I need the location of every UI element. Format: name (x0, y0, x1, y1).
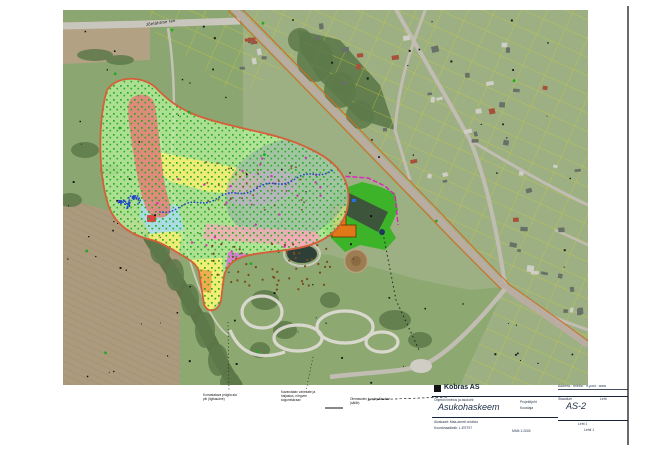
drawing-number: AS-2 (566, 401, 586, 411)
annotation-3: Olemasolev juurdepääsutee(säilib) (350, 397, 390, 405)
drawing-title: Asukohaskeem (438, 402, 500, 412)
company-name: Kobras AS (444, 384, 480, 391)
role-2: Koostaja (520, 406, 533, 410)
title-block: Kobras AS Aadress · telefon · e-post · w… (432, 383, 628, 445)
sheet-value: Leht 1 (578, 422, 587, 426)
sheets-value: Lehti 1 (584, 428, 594, 432)
company-logo (434, 385, 441, 392)
coordinate-note: Koordinaadistik: L-EST97 (434, 426, 472, 430)
annotation-2: Kavandatav vahekate jahaljastus, nõrgvee… (281, 390, 315, 402)
sheet-label: Leht (600, 397, 607, 401)
scale-note: Mõõt 1:2000 (512, 429, 531, 433)
basemap-note: Aluskaart: Maa-ameti ortofoto (434, 420, 478, 424)
map-photo-layers: Jõelähtme tee (58, 2, 588, 392)
annotation-1: Korrastatava prügila alapiir (ligikaudne… (203, 393, 237, 401)
role-1: Projektijuht (520, 400, 537, 404)
drawing-sheet: Jõelähtme tee Korrastatava prügila alapi… (0, 0, 650, 459)
